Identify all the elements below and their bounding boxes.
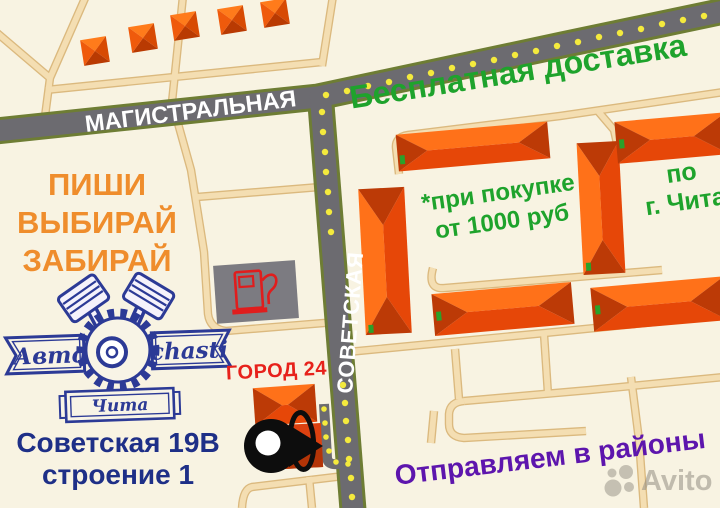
logo-text-city: Чита <box>91 395 149 417</box>
house-icon <box>260 0 290 28</box>
house-icon <box>170 11 200 41</box>
address-text: Советская 19В строение 1 <box>8 427 228 491</box>
logo-emblem: Авто chasti Чита <box>3 269 232 424</box>
map-canvas: МАГИСТРАЛЬНАЯ СОВЕТСКАЯ Авто <box>0 0 720 508</box>
avito-watermark: Avito <box>604 464 712 498</box>
logo-text-left: Авто <box>11 341 87 371</box>
promo-slogan-line1: ПИШИ <box>6 166 188 204</box>
address-line2: строение 1 <box>8 459 228 491</box>
building-block <box>590 276 720 332</box>
city-banner: Чита <box>59 388 180 422</box>
house-icon <box>128 23 158 53</box>
house-icon <box>217 5 247 35</box>
gear-icon <box>80 312 157 389</box>
promo-slogan: ПИШИ ВЫБИРАЙ ЗАБИРАЙ <box>6 166 188 279</box>
piston-left-icon <box>57 273 110 323</box>
promo-slogan-line3: ЗАБИРАЙ <box>6 242 188 280</box>
avito-watermark-label: Avito <box>641 465 712 498</box>
building-block <box>396 121 551 171</box>
ribbon-right: chasti <box>149 330 230 369</box>
street-label-magistralnaya: МАГИСТРАЛЬНАЯ <box>83 85 297 137</box>
gas-station <box>213 260 299 324</box>
promo-slogan-line2: ВЫБИРАЙ <box>6 204 188 242</box>
address-line1: Советская 19В <box>8 427 228 459</box>
avito-logo-icon <box>604 464 638 498</box>
logo-text-right: chasti <box>150 336 229 366</box>
ribbon-left: Авто <box>5 335 87 374</box>
house-icon <box>80 36 110 66</box>
